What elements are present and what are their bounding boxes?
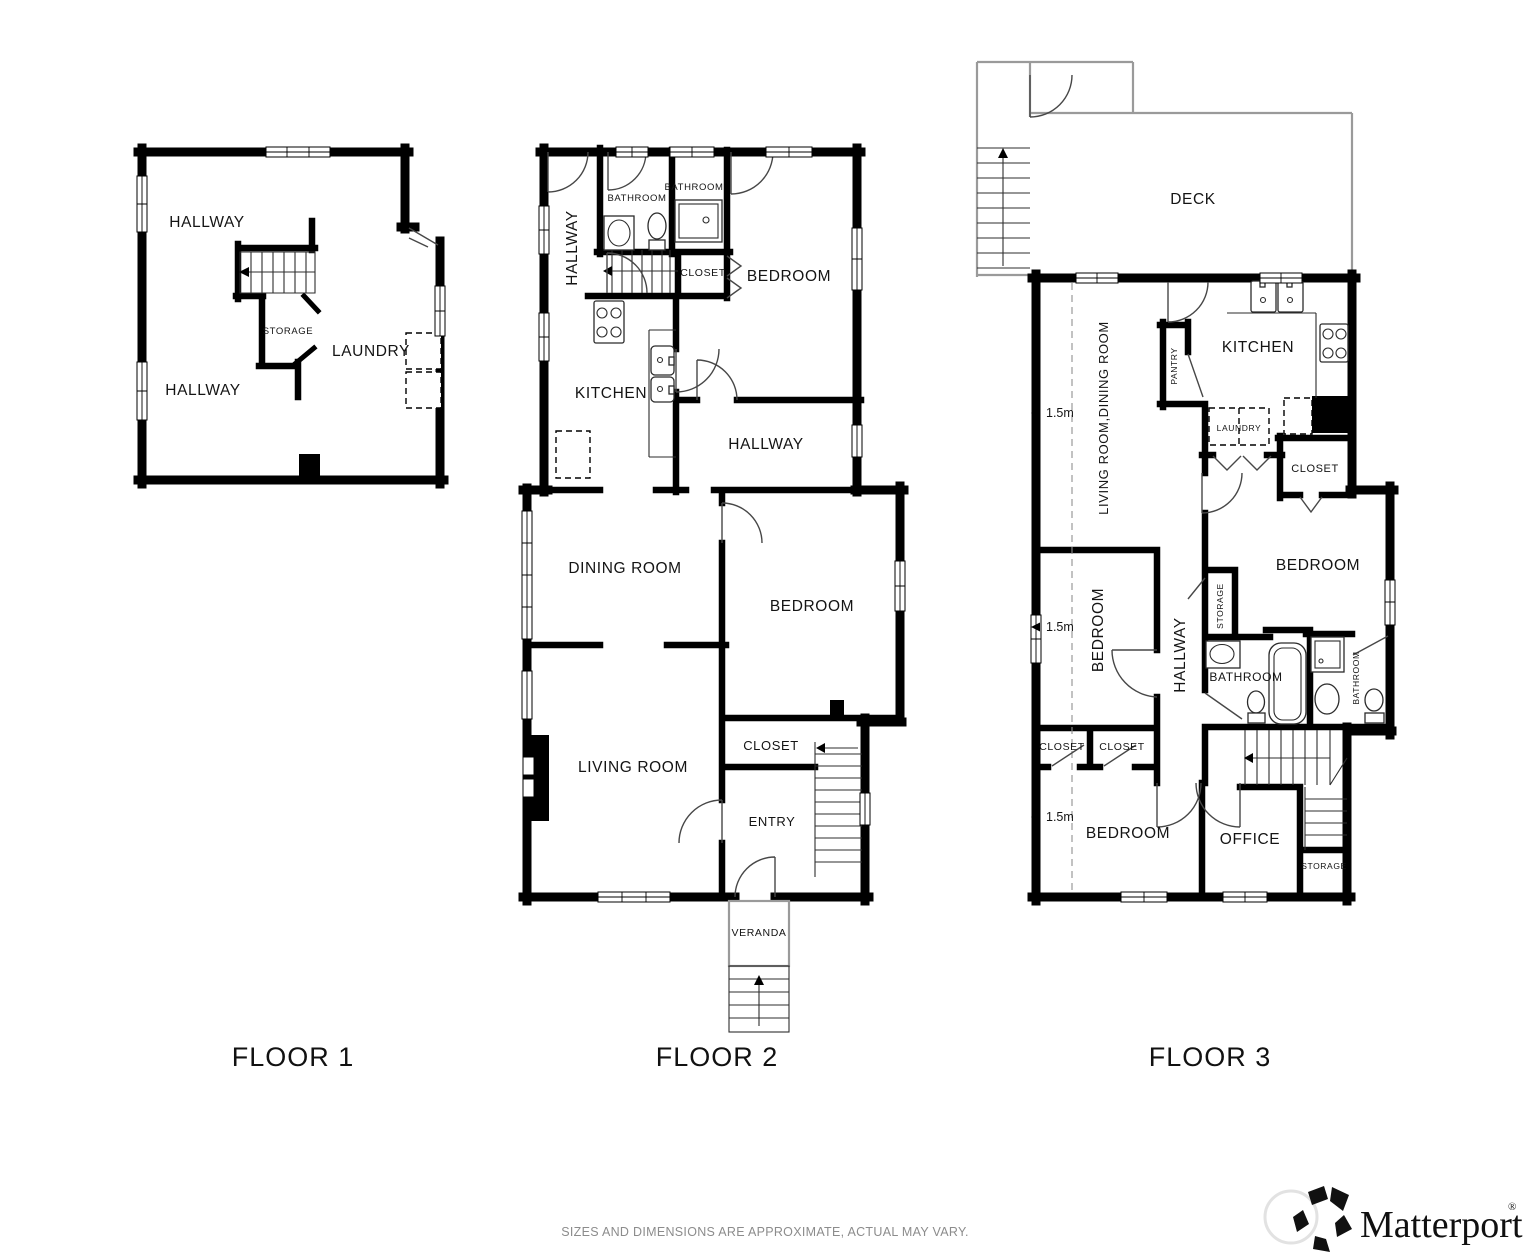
floor1-staircase bbox=[239, 252, 315, 293]
floor1-chimney bbox=[299, 454, 320, 480]
room-label-hallway: HALLWAY bbox=[1172, 617, 1189, 692]
sink-icon bbox=[1315, 684, 1339, 714]
floor1-title: FLOOR 1 bbox=[232, 1042, 355, 1072]
room-label-entry: ENTRY bbox=[749, 814, 796, 829]
room-label-storage: STORAGE bbox=[263, 326, 313, 337]
room-label-hallway-lower: HALLWAY bbox=[165, 382, 240, 399]
floor3-chimney bbox=[1312, 396, 1352, 433]
floor2-plan: HALLWAY BATHROOM BATHROOM CLOSET BEDROOM… bbox=[522, 147, 905, 1032]
room-label-hallway-upper: HALLWAY bbox=[169, 214, 244, 231]
room-label-bathroom-left: BATHROOM bbox=[608, 193, 667, 204]
stove-icon bbox=[594, 301, 624, 343]
room-label-storage-bedroom: STORAGE bbox=[1215, 583, 1225, 629]
room-label-laundry: LAUNDRY bbox=[1217, 423, 1262, 433]
floor3-exterior-walls bbox=[1032, 274, 1394, 901]
floor3-title: FLOOR 3 bbox=[1149, 1042, 1272, 1072]
room-label-bedroom-upper: BEDROOM bbox=[747, 268, 831, 285]
toilet-icon bbox=[1365, 689, 1383, 711]
room-label-pantry: PANTRY bbox=[1169, 347, 1179, 384]
floor3-laundry bbox=[1209, 398, 1312, 470]
floor1-interior-walls bbox=[236, 221, 315, 397]
room-label-bathroom-right: BATHROOM bbox=[665, 182, 724, 193]
appliance-icon bbox=[1284, 398, 1312, 434]
room-label-closet-upper: CLOSET bbox=[680, 267, 726, 279]
deck-door bbox=[1030, 75, 1072, 117]
room-label-living-dining: LIVING ROOM,DINING ROOM bbox=[1096, 321, 1111, 515]
refrigerator-icon bbox=[556, 431, 590, 478]
floor2-interior-walls bbox=[527, 148, 900, 897]
matterport-logo: Matterport ® bbox=[1265, 1186, 1523, 1252]
room-label-bedroom-right: BEDROOM bbox=[1276, 557, 1360, 574]
room-label-closet-mid: CLOSET bbox=[1099, 741, 1145, 753]
veranda-structure bbox=[729, 901, 789, 1032]
ceiling-height-text: 1.5m bbox=[1046, 620, 1074, 634]
room-label-bathroom-ensuite: BATHROOM bbox=[1351, 651, 1361, 704]
floor1-exterior-walls bbox=[138, 148, 444, 484]
floor2-entry-staircase bbox=[815, 742, 862, 877]
room-label-closet-left: CLOSET bbox=[1039, 741, 1085, 753]
floor2-wall-pier bbox=[830, 700, 844, 718]
ceiling-height-text: 1.5m bbox=[1046, 406, 1074, 420]
bathroom-left-fixtures bbox=[604, 213, 666, 250]
floor3-window-mullions bbox=[1031, 273, 1395, 902]
floor-plan-drawing: HALLWAY HALLWAY STORAGE LAUNDRY bbox=[0, 0, 1530, 1253]
floor-plan-page: HALLWAY HALLWAY STORAGE LAUNDRY bbox=[0, 0, 1530, 1253]
room-label-deck: DECK bbox=[1170, 191, 1216, 208]
floor3-deck-structure bbox=[977, 62, 1352, 277]
room-label-closet-kitchen: CLOSET bbox=[1291, 463, 1339, 475]
room-label-kitchen: KITCHEN bbox=[575, 385, 647, 402]
floor2-chimney bbox=[523, 735, 549, 821]
shower-icon bbox=[675, 200, 722, 242]
closet-bifold-door bbox=[1300, 497, 1322, 512]
room-label-bathroom-main: BATHROOM bbox=[1209, 670, 1282, 684]
floor1-plan: HALLWAY HALLWAY STORAGE LAUNDRY bbox=[137, 147, 445, 484]
disclaimer-text: SIZES AND DIMENSIONS ARE APPROXIMATE, AC… bbox=[561, 1225, 969, 1239]
stove-icon bbox=[1320, 324, 1348, 362]
shower-icon bbox=[1311, 637, 1344, 672]
room-label-veranda: VERANDA bbox=[732, 927, 787, 939]
stair-direction-arrow bbox=[754, 975, 764, 985]
registered-mark: ® bbox=[1508, 1201, 1516, 1213]
floor2-title: FLOOR 2 bbox=[656, 1042, 779, 1072]
floor3-plan: 1.5m 1.5m 1.5m DECK LIVING ROOM,DINING R… bbox=[977, 62, 1395, 902]
laundry-bifold-doors bbox=[1213, 456, 1271, 470]
room-label-bedroom-left: BEDROOM bbox=[1090, 588, 1107, 672]
kitchen-counter-sinks bbox=[649, 330, 676, 457]
room-label-bedroom-lower: BEDROOM bbox=[1086, 825, 1170, 842]
room-label-hallway-mid: HALLWAY bbox=[728, 436, 803, 453]
room-label-hallway: HALLWAY bbox=[564, 210, 581, 285]
floor1-corner-door bbox=[409, 228, 438, 247]
matterport-logo-ring bbox=[1265, 1191, 1317, 1243]
room-label-dining-room: DINING ROOM bbox=[568, 560, 681, 577]
room-label-kitchen: KITCHEN bbox=[1222, 339, 1294, 356]
room-label-storage-office: STORAGE bbox=[1301, 861, 1347, 871]
floor1-window-mullions bbox=[137, 147, 445, 420]
stair-direction-arrow bbox=[816, 743, 825, 753]
room-label-office: OFFICE bbox=[1220, 831, 1280, 848]
bathroom-ensuite-fixtures bbox=[1311, 637, 1384, 723]
dryer-icon bbox=[406, 372, 441, 408]
stair-direction-arrow bbox=[998, 148, 1008, 158]
toilet-icon bbox=[1248, 691, 1265, 713]
washer-icon bbox=[406, 333, 441, 369]
toilet-icon bbox=[648, 213, 666, 239]
room-label-closet-lower: CLOSET bbox=[743, 738, 799, 753]
room-label-laundry: LAUNDRY bbox=[332, 343, 410, 360]
matterport-wordmark: Matterport bbox=[1360, 1204, 1523, 1246]
ceiling-height-text: 1.5m bbox=[1046, 810, 1074, 824]
room-label-bedroom-lower: BEDROOM bbox=[770, 598, 854, 615]
room-label-living-room: LIVING ROOM bbox=[578, 759, 688, 776]
